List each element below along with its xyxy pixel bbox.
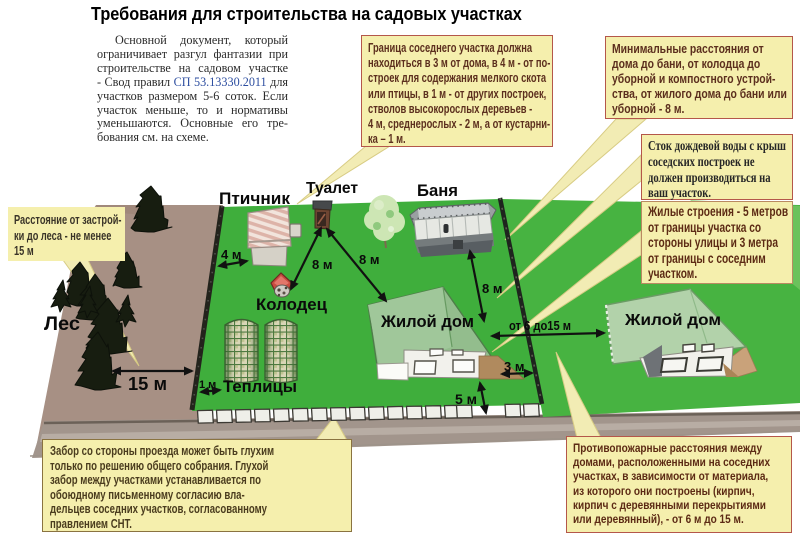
- svg-text:15 м: 15 м: [128, 374, 167, 394]
- svg-text:8 м: 8 м: [359, 252, 379, 267]
- svg-text:Лес: Лес: [44, 314, 80, 335]
- svg-text:от 6 до15 м: от 6 до15 м: [509, 318, 571, 333]
- svg-text:8 м: 8 м: [482, 281, 502, 296]
- svg-text:Жилой дом: Жилой дом: [380, 313, 474, 331]
- svg-text:Жилой дом: Жилой дом: [624, 312, 721, 329]
- svg-text:4 м: 4 м: [221, 247, 241, 262]
- svg-text:Баня: Баня: [417, 182, 458, 200]
- svg-text:1 м: 1 м: [199, 379, 216, 391]
- svg-text:5 м: 5 м: [455, 391, 477, 407]
- svg-text:3 м: 3 м: [504, 359, 524, 374]
- svg-text:Туалет: Туалет: [306, 180, 358, 197]
- svg-text:Теплицы: Теплицы: [223, 378, 297, 396]
- svg-text:8 м: 8 м: [312, 257, 332, 272]
- svg-text:Птичник: Птичник: [219, 189, 290, 208]
- svg-text:Колодец: Колодец: [256, 295, 328, 314]
